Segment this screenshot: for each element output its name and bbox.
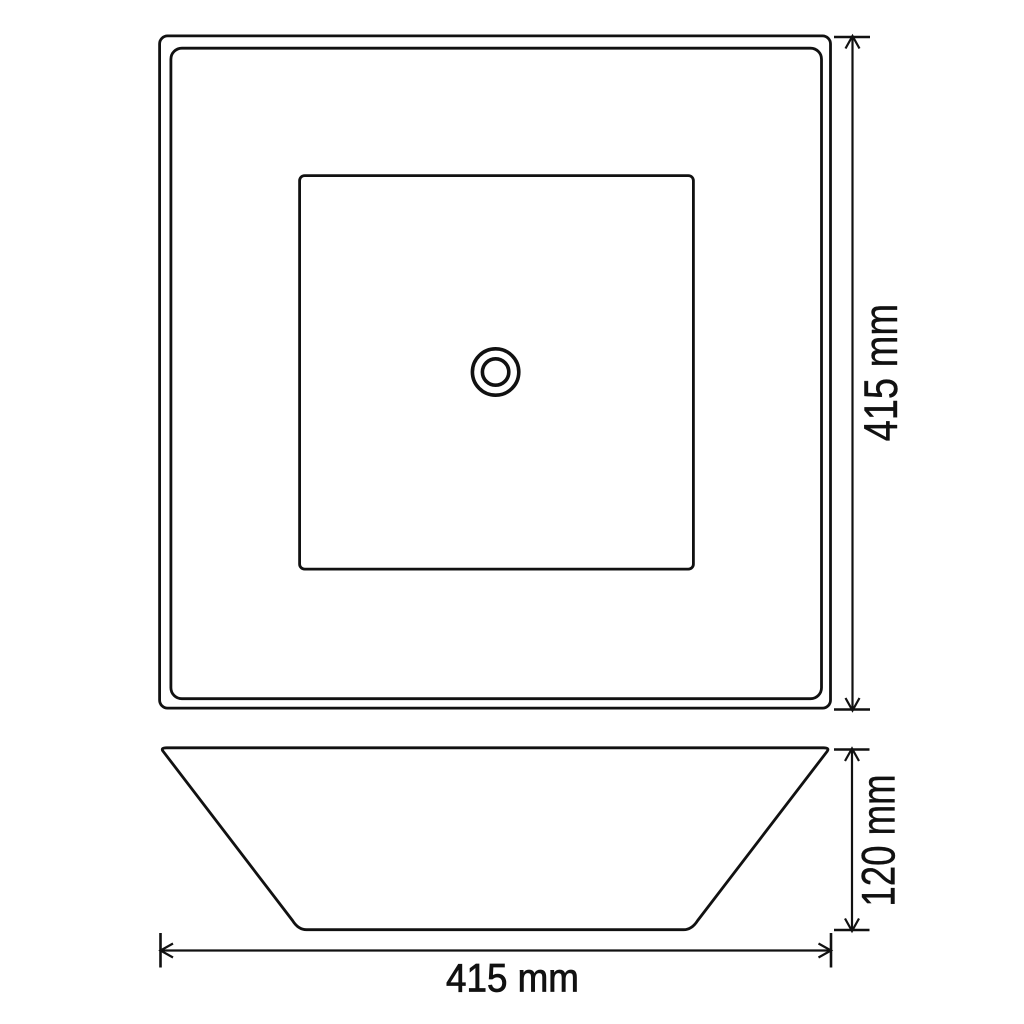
svg-text:415 mm: 415 mm xyxy=(446,956,579,1001)
svg-text:415 mm: 415 mm xyxy=(855,304,908,441)
svg-text:120 mm: 120 mm xyxy=(852,774,904,906)
